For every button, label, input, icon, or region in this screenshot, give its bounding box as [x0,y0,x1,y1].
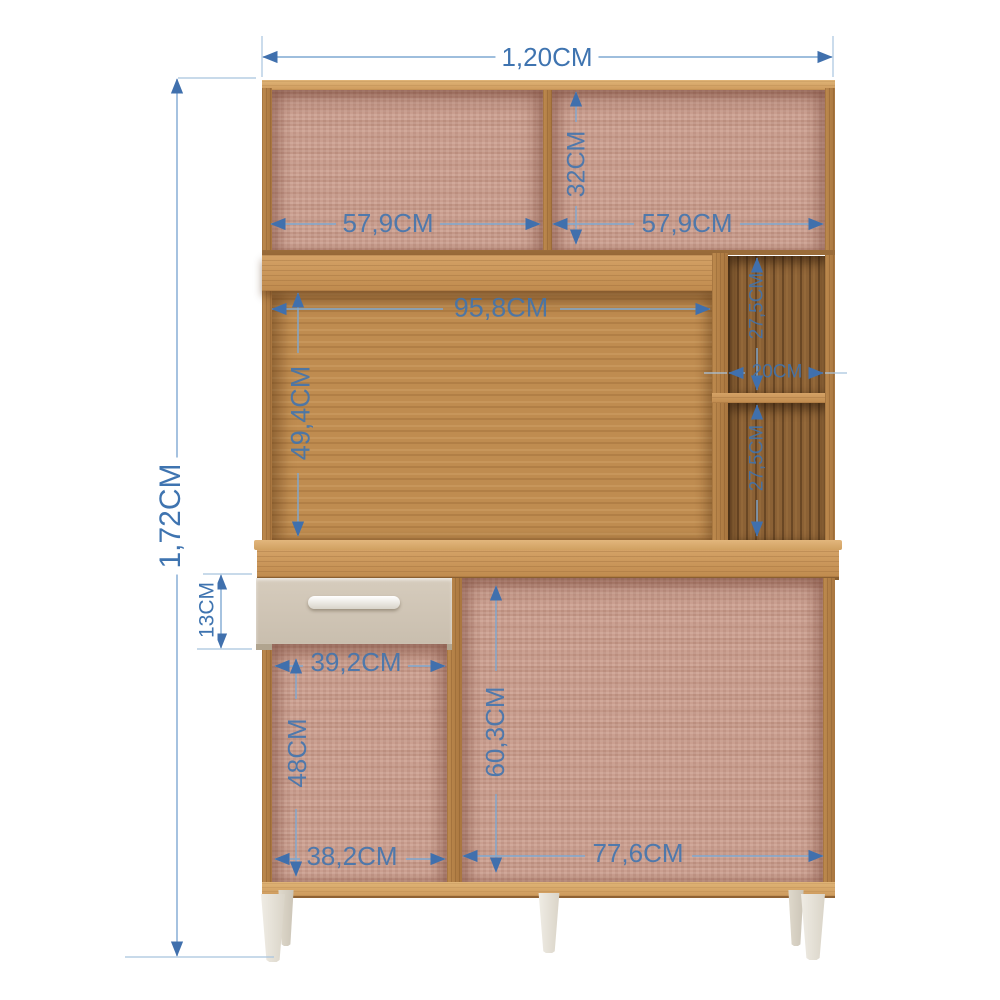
dim-hutch-right-width: 57,9CM [641,210,732,236]
dim-lower-left-opening-width: 39,2CM [310,649,401,675]
dim-hutch-left-width: 57,9CM [342,210,433,236]
cabinet-dimension-diagram: 1,20CM 1,72CM 57,9CM 32CM 57,9CM 95,8CM … [0,0,1000,1000]
middle-rail [262,255,726,291]
countertop-band [257,550,839,580]
dim-niche-bottom-height: 27,5CM [748,425,767,492]
dim-niche-top-height: 27,5CM [748,273,767,340]
drawer-front[interactable] [256,578,452,650]
dim-middle-opening-height: 49,4CM [288,366,315,461]
countertop-edge [254,540,842,550]
base-right-compartment [462,578,823,882]
hutch-right-side-panel [825,88,835,545]
middle-open-compartment [272,291,712,540]
dim-overall-width: 1,20CM [495,44,598,70]
front-right-leg [798,894,828,960]
dim-lower-right-opening-height: 60,3CM [482,686,508,777]
dim-lower-left-opening-height: 48CM [284,718,310,787]
base-right-side-panel [823,578,835,882]
dim-niche-width: 20CM [752,363,803,382]
niche-shelf [712,393,825,403]
hutch-center-divider [543,90,552,252]
dim-overall-height: 1,72CM [156,457,186,574]
front-middle-leg [536,893,562,953]
dim-bottom-left-width: 38,2CM [306,843,397,869]
dim-drawer-height: 13CM [197,576,218,644]
hutch-left-side-panel [262,88,272,545]
dim-hutch-height: 32CM [565,131,590,198]
drawer-handle[interactable] [308,596,400,609]
dim-bottom-right-width: 77,6CM [592,840,683,866]
niche-bottom-compartment [728,403,825,540]
dim-middle-opening-width: 95,8CM [454,295,549,322]
